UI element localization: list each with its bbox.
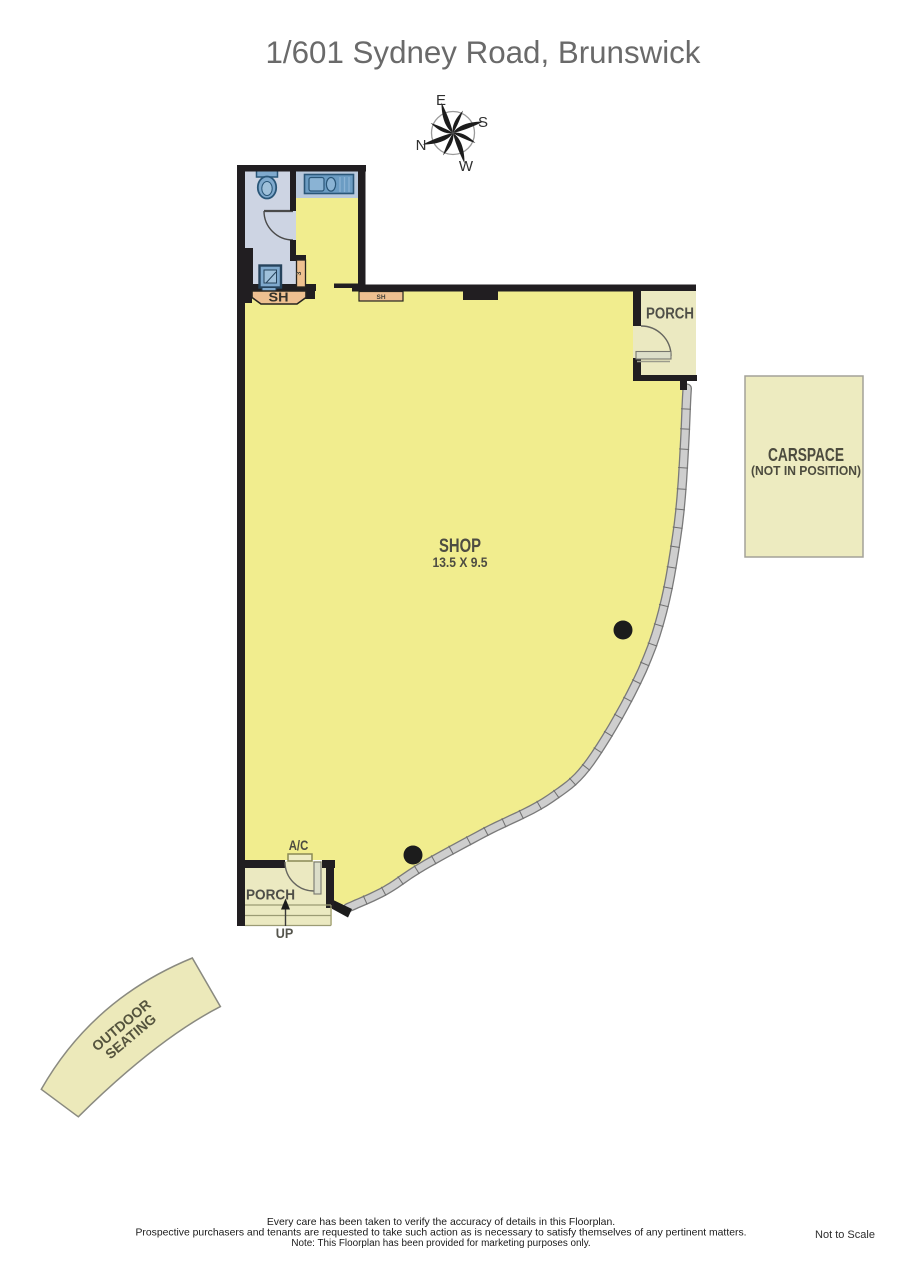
svg-text:W: W [459, 158, 474, 175]
svg-text:N: N [416, 137, 427, 154]
svg-text:E: E [436, 92, 446, 109]
svg-text:Not to Scale: Not to Scale [815, 1229, 875, 1241]
svg-text:(NOT IN POSITION): (NOT IN POSITION) [751, 464, 861, 478]
svg-text:Every care has been taken to v: Every care has been taken to verify the … [267, 1217, 615, 1228]
svg-text:SH: SH [269, 291, 289, 305]
svg-text:1/601 Sydney Road, Brunswick: 1/601 Sydney Road, Brunswick [266, 35, 701, 70]
svg-text:UP: UP [276, 925, 294, 941]
svg-text:PORCH: PORCH [246, 887, 295, 904]
svg-text:Prospective purchasers and ten: Prospective purchasers and tenants are r… [135, 1228, 746, 1239]
svg-text:S: S [478, 114, 488, 131]
svg-text:SH: SH [376, 294, 385, 301]
svg-text:13.5 X 9.5: 13.5 X 9.5 [433, 554, 488, 570]
svg-text:A/C: A/C [289, 838, 309, 853]
svg-text:3: 3 [296, 271, 303, 275]
svg-text:Note: This Floorplan has been: Note: This Floorplan has been provided f… [291, 1238, 590, 1249]
svg-text:CARSPACE: CARSPACE [768, 445, 844, 465]
svg-text:PORCH: PORCH [646, 306, 694, 323]
